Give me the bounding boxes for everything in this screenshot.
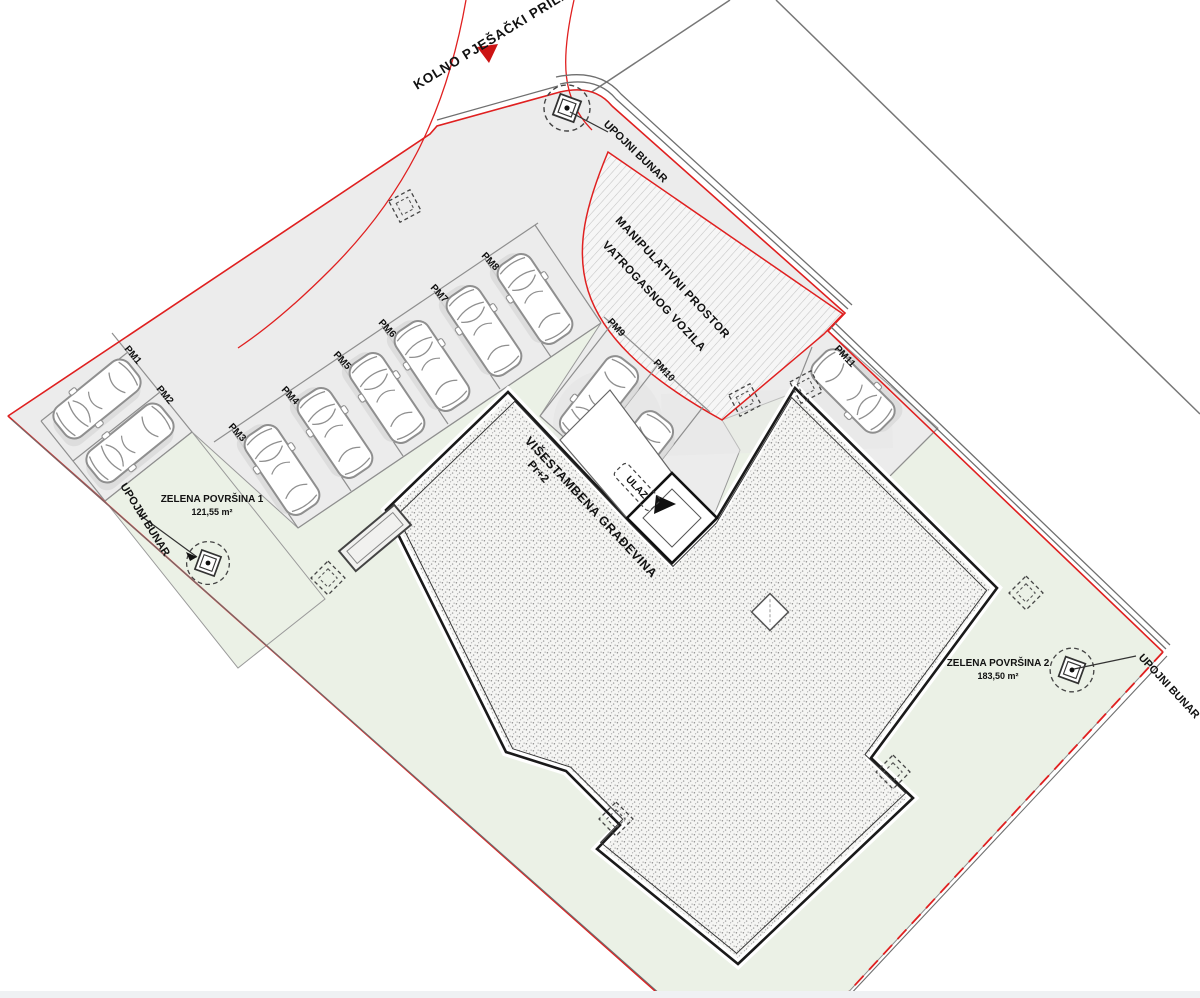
- site-plan-canvas: KOLNO PJEŠAČKI PRILAZ MANIPULATIVNI PROS…: [0, 0, 1200, 998]
- well-label-green2: UPOJNI BUNAR: [1136, 652, 1200, 721]
- green-area-1-size: 121,55 m²: [191, 507, 232, 517]
- bottom-edge-strip: [0, 991, 1200, 998]
- site-plan-drawing: KOLNO PJEŠAČKI PRILAZ MANIPULATIVNI PROS…: [0, 0, 1200, 998]
- green-area-1-name: ZELENA POVRŠINA 1: [161, 492, 264, 505]
- green-area-2-size: 183,50 m²: [977, 671, 1018, 681]
- road-edge-line-left: [590, 0, 730, 93]
- green-area-2-name: ZELENA POVRŠINA 2: [947, 656, 1050, 669]
